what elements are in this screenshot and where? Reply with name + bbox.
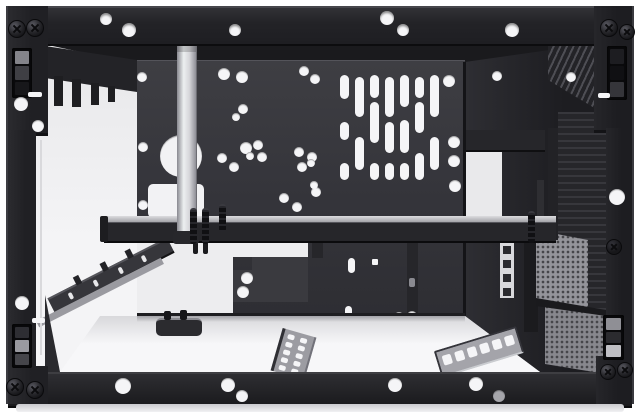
chassis-photo [0,0,640,417]
vent-slot [385,77,394,117]
latch-recess [607,46,627,100]
thumbscrew-hole [14,97,28,111]
frame-slit [28,92,42,97]
panel-hole [257,152,267,162]
rail-slit [68,291,75,299]
cage-top-rail [465,130,545,152]
panel-hole [310,74,320,84]
support-rail [177,42,197,234]
rail-hole [100,13,112,25]
vent-slot [370,75,379,98]
rail-hole [469,377,483,391]
frame-bottom-rail [8,372,632,408]
vent-slot [370,163,379,180]
rail-hole-recessed [493,390,505,402]
floor-vent-slot [442,353,454,365]
panel-wall-edge [463,62,466,316]
panel-hole [443,75,455,87]
latch-clip [15,66,29,79]
bracket-hole [241,272,253,284]
vent-slot [415,153,424,180]
vent-slot [415,102,424,133]
panel-hole [229,162,239,172]
vent-slot [400,120,409,153]
screw-icon [600,19,618,37]
panel-hole [310,181,318,189]
panel-hole [297,162,307,172]
rail-hole [380,11,394,25]
standoff-peg [202,208,209,244]
frame-slit [598,93,610,98]
bracket-tab [108,86,115,102]
cage-frame [524,228,538,332]
panel-hole [299,66,309,76]
rail-slit [92,279,99,287]
panel-hole [307,159,315,167]
latch-clip [15,51,29,64]
wall-hole [492,71,502,81]
vent-slot [340,122,349,140]
panel-hole [449,180,461,192]
vent-slot [400,163,409,180]
thumbscrew-hole [609,189,625,205]
latch-clip [610,66,624,81]
floor-vent-slot [287,334,295,341]
bracket-tab [54,76,63,106]
vent-slot [370,102,379,143]
panel-hole [292,202,302,212]
floor-vent-slot [283,349,291,356]
floor-vent-slot [278,365,286,372]
floor-vent-slot [479,342,491,354]
rail-hole [388,378,402,392]
floor-vent-slot [293,360,301,367]
panel-hole [246,152,254,160]
screw-icon [26,19,44,37]
screw-icon [619,24,635,40]
cage-rail-hole [503,288,511,296]
panel-hole [279,193,289,203]
screw-icon [8,20,26,38]
frame-top-rail [8,6,632,46]
cage-rail-hole [503,246,511,254]
panel-hole [138,200,148,210]
latch-recess [603,315,624,360]
tray-end-cap [100,216,108,242]
standoff-peg [528,211,535,243]
floor-vent-slot [299,337,307,344]
screw-icon [606,239,622,255]
floor-fitting [156,318,202,336]
vent-slot [355,77,364,117]
screw-icon [6,378,24,396]
floor-reflection [16,404,624,412]
panel-hole [232,113,240,121]
floor-vent-slot [297,345,305,352]
vent-slot [430,75,439,117]
vent-slot [385,163,394,180]
screw-icon [617,362,633,378]
latch-clip [15,82,29,95]
rail-hole [397,24,409,36]
panel-hole [448,155,460,167]
vent-slot [355,137,364,170]
floor-vent-slot [280,357,288,364]
screw-icon [26,381,44,399]
floor-vent-slot [466,346,478,358]
rail-slit [141,254,148,262]
standoff-peg [219,204,226,232]
panel-hole [138,142,148,152]
vent-slot [415,77,424,98]
floor-vent-slot [295,353,303,360]
rail-hole [115,378,131,394]
vent-slot [385,122,394,153]
latch-clip [15,340,29,351]
vent-slot [340,75,349,99]
panel-slot [348,258,355,273]
latch-recess [12,324,32,368]
panel-hole [218,68,230,80]
floor-vent-slot [454,350,466,362]
thumbscrew-hole [32,120,44,132]
panel-square-hole [372,259,378,265]
rail-hole [229,24,241,36]
thumbscrew-hole [15,296,29,310]
panel-hole [217,153,227,163]
latch-clip [15,354,29,365]
hanging-bracket-slot [409,278,415,287]
panel-hole [137,72,147,82]
frame-slit [32,318,45,323]
latch-clip [610,82,624,97]
bracket-hole [237,286,249,298]
vent-slot [430,137,439,170]
latch-clip [606,318,621,330]
fitting-peg [164,311,171,320]
rail-hole [221,378,235,392]
panel-hole [294,147,304,157]
rail-hole [236,390,248,402]
bracket-tab [91,83,99,105]
panel-hole [236,71,248,83]
vent-slot [400,75,409,107]
latch-clip [606,345,621,357]
rail-hole [505,23,519,37]
panel-hole [238,104,248,114]
rail-hole [122,23,136,37]
panel-hole [448,136,460,148]
rail-slit [117,266,124,274]
wall-hole [566,72,576,82]
floor-vent-slot [504,334,516,346]
latch-clip [610,49,624,64]
latch-recess [12,48,32,98]
vent-slot [340,163,349,180]
latch-clip [606,332,621,344]
tray-face [104,222,556,243]
panel-hole [253,140,263,150]
bracket-tab [72,79,81,107]
panel-opening-band [233,243,308,257]
floor-vent-slot [491,338,503,350]
fitting-peg [180,310,187,320]
standoff-peg [190,208,197,244]
floor-vent-slot [285,341,293,348]
screw-icon [600,364,616,380]
cage-rail-hole [503,274,511,282]
latch-clip [15,327,29,338]
cage-rail-hole [503,260,511,268]
